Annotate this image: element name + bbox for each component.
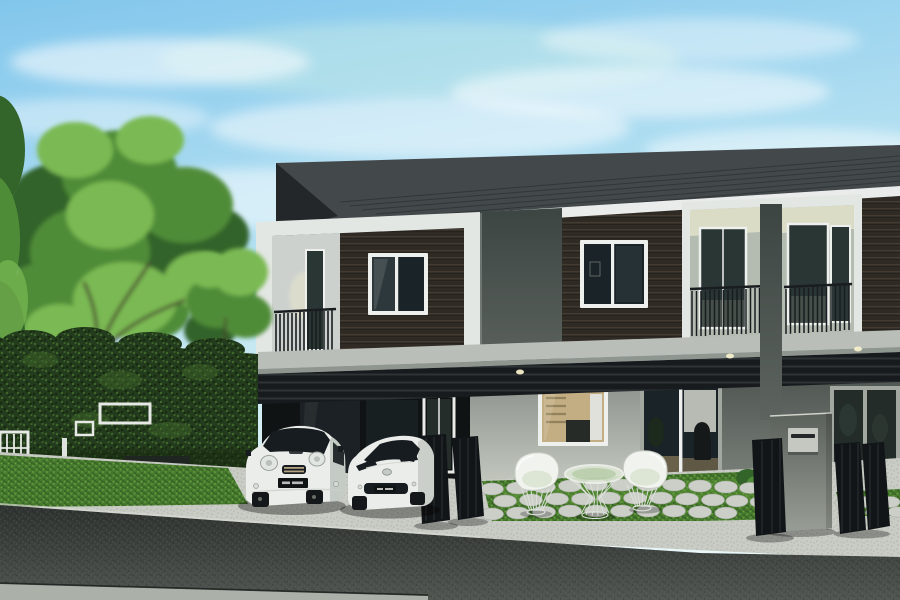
fog-light	[254, 484, 259, 489]
balcony1-railing	[690, 286, 766, 336]
car-mirror-right	[338, 446, 343, 452]
wheel-sports-left	[352, 496, 367, 510]
interior-counter	[566, 420, 590, 442]
glass-tree-reflection	[839, 404, 857, 436]
car-mirror-left	[246, 450, 251, 456]
car-hatchback-grille	[282, 465, 306, 474]
mailbox	[788, 428, 818, 452]
townhouse-render-image	[0, 0, 900, 600]
gate-panel-3	[752, 438, 786, 536]
hood-scoop	[289, 448, 303, 454]
unit2-window	[580, 240, 648, 308]
maker-emblem	[383, 469, 392, 475]
interior-plant	[648, 417, 664, 447]
license-plate	[278, 478, 308, 488]
kitchen-window	[538, 388, 608, 446]
unit1-window	[368, 253, 428, 315]
wheel-sports-right	[410, 492, 425, 505]
balcony-divider-column	[760, 204, 782, 420]
interior-cabinet	[590, 394, 602, 440]
fog-light-sports	[358, 485, 362, 489]
license-plate-sports	[374, 486, 396, 493]
scene-canvas	[0, 0, 900, 600]
mailbox-slot	[791, 434, 815, 438]
